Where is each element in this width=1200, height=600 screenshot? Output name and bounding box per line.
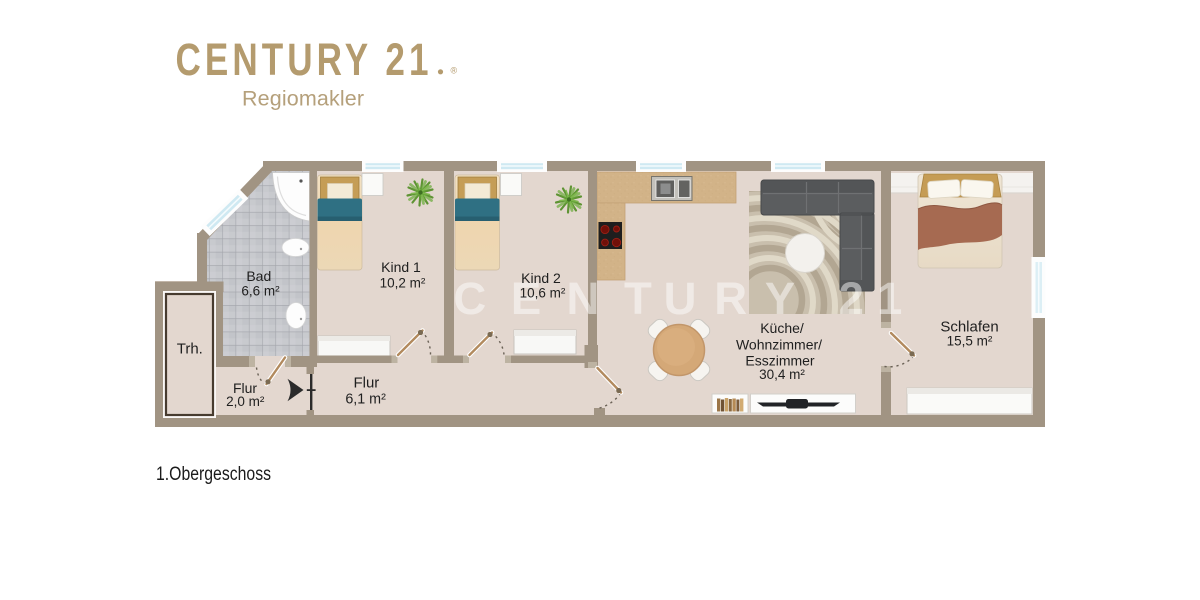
svg-text:6,6 m²: 6,6 m²	[241, 283, 280, 298]
svg-text:®: ®	[451, 66, 458, 76]
svg-text:Wohnzimmer/: Wohnzimmer/	[736, 337, 822, 353]
svg-text:Kind 2: Kind 2	[521, 270, 561, 286]
svg-text:Kind 1: Kind 1	[381, 259, 421, 275]
svg-text:30,4 m²: 30,4 m²	[759, 367, 805, 382]
svg-text:1.Obergeschoss: 1.Obergeschoss	[156, 464, 271, 485]
svg-text:CENTURY 21: CENTURY 21	[176, 34, 433, 85]
svg-text:2,0 m²: 2,0 m²	[226, 394, 265, 409]
svg-text:Flur: Flur	[353, 375, 379, 392]
svg-text:6,1 m²: 6,1 m²	[345, 392, 386, 408]
svg-text:15,5 m²: 15,5 m²	[947, 333, 993, 348]
svg-text:Regiomakler: Regiomakler	[242, 87, 364, 111]
svg-text:Küche/: Küche/	[760, 320, 804, 336]
svg-text:Trh.: Trh.	[177, 341, 203, 358]
svg-text:Bad: Bad	[246, 268, 271, 284]
svg-text:10,6 m²: 10,6 m²	[520, 286, 566, 301]
svg-text:10,2 m²: 10,2 m²	[380, 275, 426, 290]
